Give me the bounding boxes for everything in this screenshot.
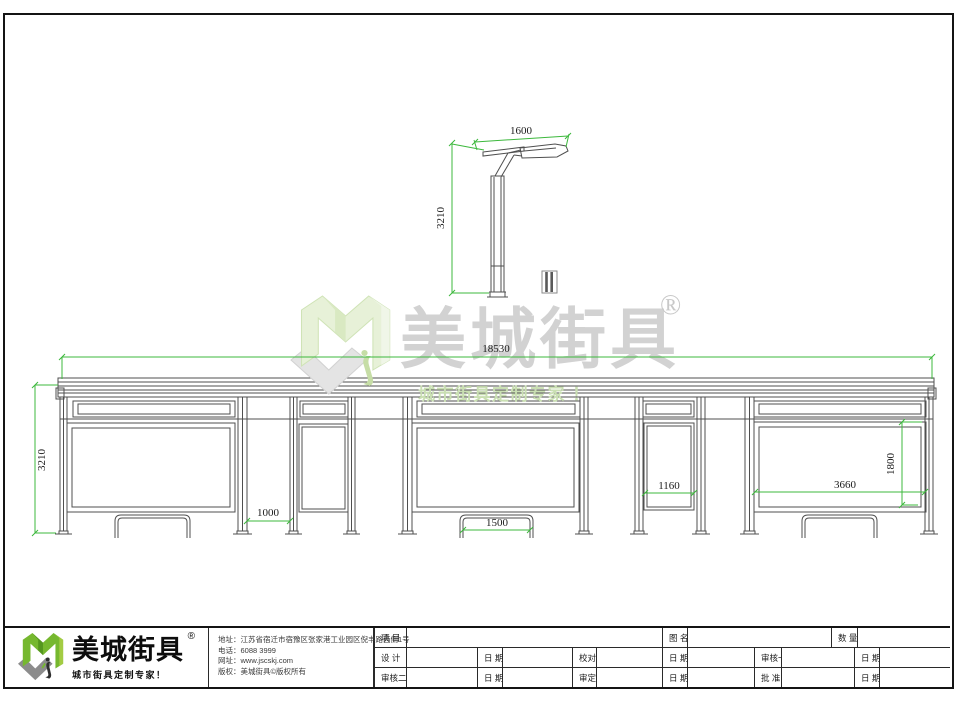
elevation-posts	[55, 397, 938, 534]
company-info-cell: 地址：江苏省宿迁市宿豫区张家港工业园区倪丰路西侧1号 电话：6088 3999 …	[209, 628, 375, 687]
label-proofread: 校对	[573, 648, 597, 667]
post-section-detail	[542, 271, 557, 293]
dim-side-top-width: 1600	[510, 125, 533, 137]
label-date-1: 日 期	[478, 648, 503, 667]
value-design	[407, 648, 478, 667]
dim-ad-panel-height: 1800	[885, 453, 897, 476]
label-verify: 审定	[573, 668, 597, 687]
company-copyright: 版权：美城街具©版权所有	[218, 667, 373, 678]
company-m-logo-icon	[18, 633, 66, 683]
label-design: 设 计	[375, 648, 407, 667]
value-project	[407, 628, 663, 647]
title-block: 美城街具 ® 城市街具定制专家！ 地址：江苏省宿迁市宿豫区张家港工业园区倪丰路西…	[5, 626, 950, 687]
value-quantity	[858, 628, 950, 647]
label-review2: 审核二	[375, 668, 407, 687]
value-date-3	[880, 648, 950, 667]
title-block-row-1: 项 目 图 名 数 量	[375, 628, 950, 648]
registered-mark: ®	[188, 631, 195, 642]
label-date-4: 日 期	[478, 668, 503, 687]
dim-post-gap: 1000	[257, 507, 280, 519]
dim-narrow-panel-width: 1160	[658, 480, 680, 492]
value-date-5	[688, 668, 755, 687]
title-block-logo-cell: 美城街具 ® 城市街具定制专家！	[5, 628, 209, 687]
value-proofread	[597, 648, 663, 667]
label-date-3: 日 期	[855, 648, 880, 667]
label-date-6: 日 期	[855, 668, 880, 687]
value-review1	[782, 648, 855, 667]
watermark-brand-text: 美城街具	[400, 302, 680, 376]
value-drawing-name	[688, 628, 832, 647]
title-block-row-3: 审核二 日 期 审定 日 期 批 准 日 期	[375, 668, 950, 687]
label-drawing-name: 图 名	[663, 628, 688, 647]
company-brand-text: 美城街具	[72, 635, 184, 665]
dim-total-length: 18530	[482, 343, 510, 355]
dim-side-height: 3210	[435, 207, 447, 230]
company-tagline-text: 城市街具定制专家！	[72, 668, 184, 681]
cad-drawing: 美城街具 ® 城市街具定制专家 ！	[0, 0, 960, 704]
title-block-row-2: 设 计 日 期 校对 日 期 审核一 日 期	[375, 648, 950, 668]
value-review2	[407, 668, 478, 687]
side-view-pole	[487, 150, 522, 297]
value-approve	[782, 668, 855, 687]
label-review1: 审核一	[755, 648, 782, 667]
dim-shelter-height: 3210	[36, 449, 48, 472]
side-view-roof	[483, 144, 568, 158]
value-date-6	[880, 668, 950, 687]
label-date-2: 日 期	[663, 648, 688, 667]
company-phone: 电话：6088 3999	[218, 646, 373, 657]
label-date-5: 日 期	[663, 668, 688, 687]
value-verify	[597, 668, 663, 687]
label-quantity: 数 量	[832, 628, 858, 647]
ad-panels	[67, 422, 926, 512]
watermark-m-logo-icon	[291, 296, 390, 394]
company-website: 网址：www.jscskj.com	[218, 656, 373, 667]
label-approve: 批 准	[755, 668, 782, 687]
dim-bench-width: 1500	[486, 517, 509, 529]
dim-ad-panel-width: 3660	[834, 479, 857, 491]
value-date-2	[688, 648, 755, 667]
watermark-tagline-text: 城市街具定制专家 ！	[418, 384, 591, 404]
value-date-1	[503, 648, 573, 667]
watermark-registered-mark: ®	[660, 290, 681, 321]
value-date-4	[503, 668, 573, 687]
title-block-grid: 项 目 图 名 数 量 设 计 日 期 校对 日 期 审核一 日 期 审核二 日…	[375, 628, 950, 687]
label-project: 项 目	[375, 628, 407, 647]
company-address: 地址：江苏省宿迁市宿豫区张家港工业园区倪丰路西侧1号	[218, 635, 373, 646]
